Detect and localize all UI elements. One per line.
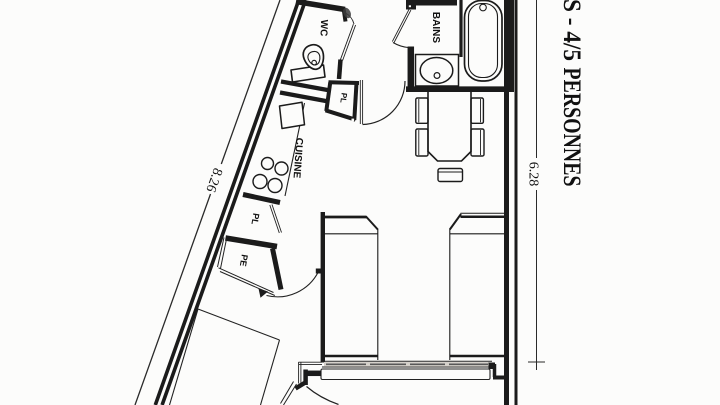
svg-text:PE: PE: [238, 254, 250, 268]
svg-text:PL: PL: [338, 92, 348, 103]
svg-text:S - 4/5: S - 4/5: [558, 0, 585, 61]
svg-text:WC: WC: [318, 19, 330, 36]
svg-text:BAINS: BAINS: [430, 12, 441, 43]
svg-text:PERSONNES: PERSONNES: [558, 68, 585, 187]
svg-text:6.28: 6.28: [526, 162, 541, 187]
svg-text:PL: PL: [249, 212, 261, 226]
